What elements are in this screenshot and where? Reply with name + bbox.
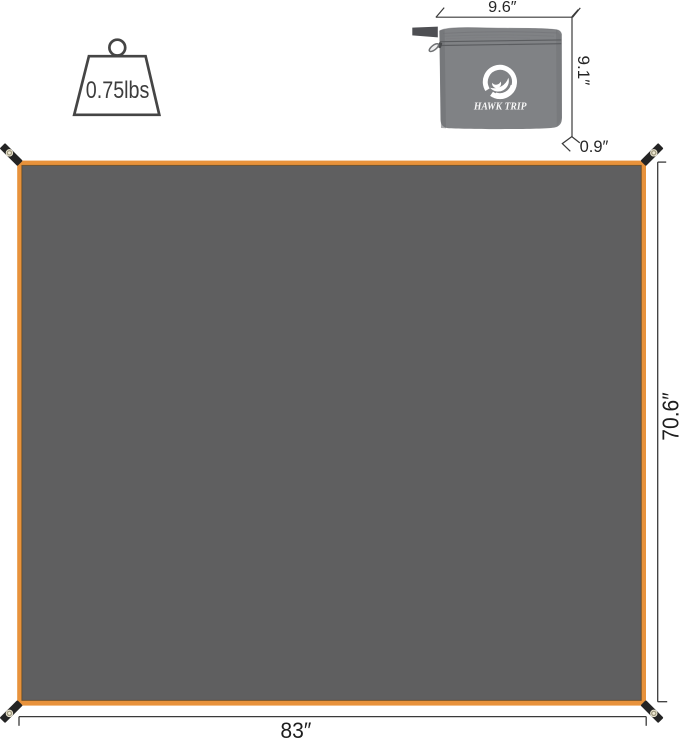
svg-text:9.1″: 9.1″: [574, 56, 593, 86]
svg-text:70.6″: 70.6″: [657, 392, 679, 440]
svg-text:9.6″: 9.6″: [488, 0, 517, 16]
svg-text:83″: 83″: [280, 718, 311, 739]
svg-text:0.75lbs: 0.75lbs: [86, 78, 150, 104]
svg-text:0.9″: 0.9″: [580, 138, 609, 156]
svg-text:HAWK TRIP: HAWK TRIP: [473, 102, 527, 113]
